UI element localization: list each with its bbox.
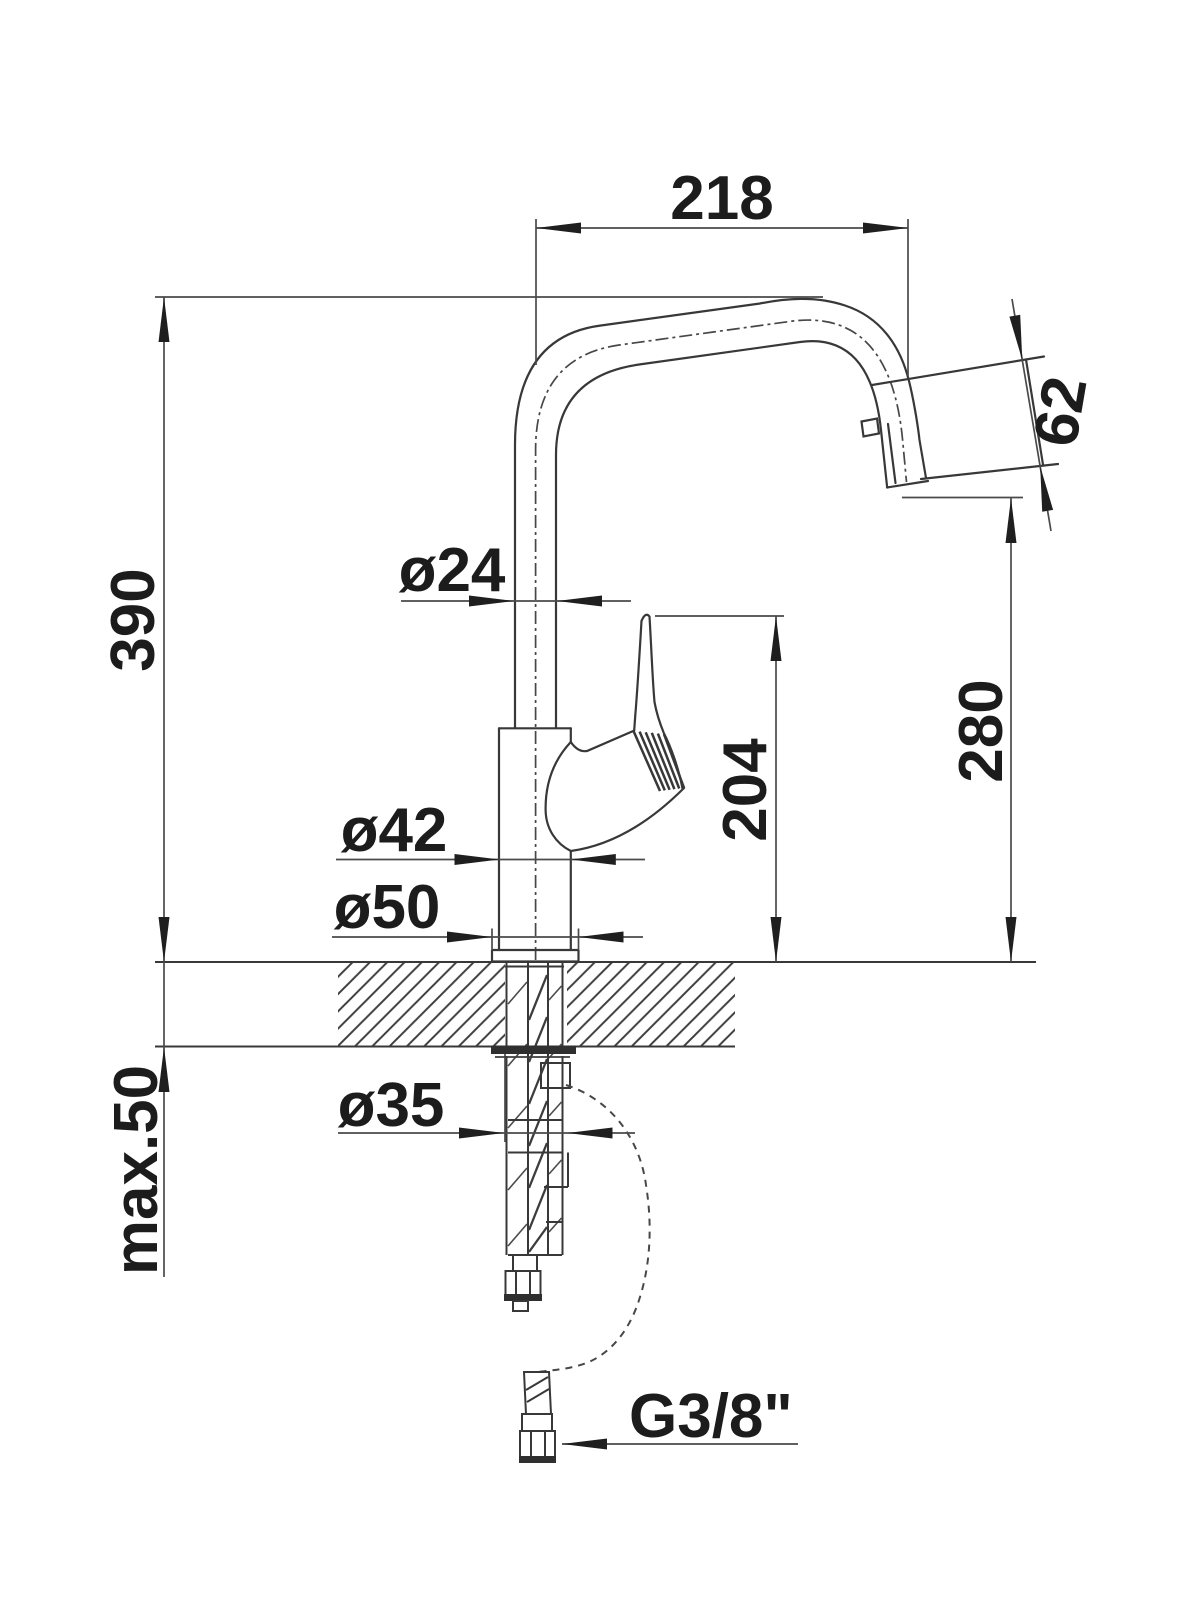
svg-text:390: 390 (99, 568, 168, 671)
svg-text:204: 204 (711, 738, 780, 842)
svg-text:max.50: max.50 (102, 1065, 171, 1275)
svg-text:ø24: ø24 (399, 536, 506, 605)
svg-text:ø50: ø50 (334, 873, 441, 942)
svg-text:ø35: ø35 (338, 1071, 445, 1140)
svg-text:G3/8": G3/8" (629, 1382, 793, 1451)
svg-text:280: 280 (947, 679, 1016, 782)
svg-text:218: 218 (670, 164, 773, 233)
svg-text:62: 62 (1021, 372, 1101, 452)
svg-text:ø42: ø42 (341, 796, 448, 865)
